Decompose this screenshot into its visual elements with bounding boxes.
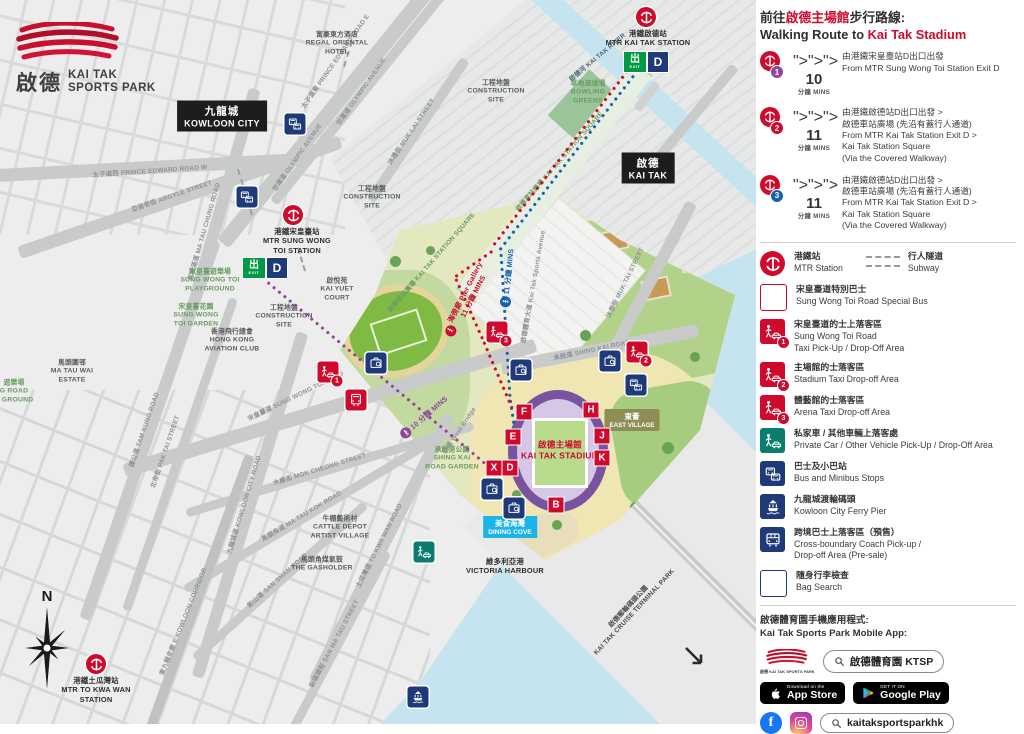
app-store-search-pill[interactable]: 啟德體育園 KTSP [823,650,944,673]
ktsp-logo: 啟德KAI TAKSPORTS PARK [16,22,156,97]
bag-icon [760,570,787,597]
area-number-badge: 3 [500,335,513,348]
east-village-box: 東薈EAST VILLAGE [604,409,659,431]
mtr-icon [283,205,303,225]
taxi-icon: 1 [760,319,785,344]
legend-item-taxi2: 2主場館的士落客區Stadium Taxi Drop-off Area [760,362,1016,387]
legend-text: 行人隧道Subway [908,251,943,274]
legend-item-bus: 宋皇臺道特別巴士Sung Wong Toi Road Special Bus [760,284,1016,311]
route-dots: ">">"> [792,177,836,195]
area-number-badge: 2 [640,355,653,368]
legend-item-bag: 隨身行李檢查Bag Search [760,570,1016,597]
stadium-gate-F: F [516,404,533,421]
bag-icon [504,498,525,519]
taxi-icon [414,542,435,563]
ktsp-logo-zh: 啟德 [16,67,62,97]
coach-icon [760,527,785,552]
legend-item-subway: 行人隧道Subway [866,251,943,274]
area-number-badge: 1 [331,375,344,388]
map-label: 宋皇臺花園SUNG WONGTOI GARDEN [173,303,218,328]
area-number-badge: 1 [777,336,790,349]
cruise-terminal-arrow-icon [682,644,706,673]
panel-title-zh: 前往啟德主場館步行路線: [760,10,1016,27]
legend-text: 宋皇臺道的士上落客區Sung Wong Toi RoadTaxi Pick-Up… [794,319,904,354]
taxi-icon [760,428,785,453]
stadium-gate-J: J [594,428,611,445]
district-label-box: 九龍城KOWLOON CITY [177,101,267,132]
map-label: 啟德主場館KAI TAK STADIUM [521,439,599,460]
route-dots: ">">"> [792,53,836,71]
bag-icon [600,351,621,372]
map-label: 馬頭角煤氣鼓THE GASHOLDER [291,557,353,574]
stadium-gate-E: E [505,429,522,446]
track-infield [369,308,427,356]
route-time: ">">">11分鐘 MINS [792,107,836,164]
bus-icon [346,390,367,411]
search-icon [831,718,842,729]
divider [760,605,1016,606]
legend-text: 體藝館的士落客區Arena Taxi Drop-off Area [794,395,890,418]
walking-route-3: 3">">">11分鐘 MINS由港鐵啟德站D出口出發 >啟德車站廣場 (先沿有… [760,175,1016,232]
dining-cove-box: 美食海灣DINING COVE [483,516,537,538]
route-number-badge: 2 [770,121,784,135]
map-label: 啟悅苑KAI YUETCOURT [320,277,353,302]
legend-item-taxi3: 3體藝館的士落客區Arena Taxi Drop-off Area [760,395,1016,420]
area-number-badge: 3 [777,412,790,425]
walker-icon [499,296,511,308]
taxi-icon: 3 [760,395,785,420]
map-canvas: 啟德KAI TAKSPORTS PARK N 太子道西 PRINCE EDWAR… [0,0,756,724]
map-label: 牛棚藝術村CATTLE DEPOTARTIST VILLAGE [311,515,370,540]
google-play-badge[interactable]: GET IT ONGoogle Play [853,682,949,704]
subway-dash-icon [866,251,900,274]
legend-text: 九龍城渡輪碼頭Kowloon City Ferry Pier [794,494,886,517]
mtr-icon [86,654,106,674]
map-label: 遊樂場G ROADN GROUND [0,379,33,404]
app-title-en: Kai Tak Sports Park Mobile App: [760,627,1016,640]
walking-route-1: 1">">">10分鐘 MINS由港鐵宋皇臺站D出口出發From MTR Sun… [760,51,1016,96]
map-label: 馬頭圍邨MA TAU WAIESTATE [51,359,93,384]
walking-route-2: 2">">">11分鐘 MINS由港鐵啟德站D出口出發 >啟德車站廣場 (先沿有… [760,107,1016,164]
legend-text: 宋皇臺道特別巴士Sung Wong Toi Road Special Bus [796,284,928,307]
taxi-icon: 2 [760,362,785,387]
area-number-badge: 2 [777,379,790,392]
taxi-icon: 3 [487,322,508,343]
legend-item-mtr: 港鐵站MTR Station行人隧道Subway [760,251,1016,276]
route-badge: 2 [760,107,786,164]
stadium-gate-X: X [486,460,503,477]
app-store-badge[interactable]: Download on theApp Store [760,682,845,704]
taxi-icon: 2 [627,342,648,363]
mtr-icon [636,7,656,27]
ktsp-logo-en: KAI TAKSPORTS PARK [68,67,156,95]
ktsp-logo-waves-icon [16,22,120,62]
route-number-badge: 1 [770,65,784,79]
busstop-icon [237,187,258,208]
route-dots: ">">"> [792,109,836,127]
ferry-icon [408,687,429,708]
map-label: 工程地盤CONSTRUCTIONSITE [467,79,524,104]
app-title-zh: 啟德體育園手機應用程式: [760,614,1016,627]
stadium-gate-K: K [594,450,611,467]
divider [760,242,1016,243]
bag-icon [366,353,387,374]
district-label-box: 啟德KAI TAK [622,153,675,184]
map-label: 港鐵宋皇臺站MTR SUNG WONGTOI STATION [263,227,331,255]
stadium-gate-H: H [583,402,600,419]
station-exit-d-badge: 出EXITD [623,51,669,73]
bag-icon [482,479,503,500]
route-time: ">">">11分鐘 MINS [792,175,836,232]
legend-text: 私家車 / 其他車輛上落客處Private Car / Other Vehicl… [794,428,993,451]
route-description: 由港鐵啟德站D出口出發 >啟德車站廣場 (先沿有蓋行人通道)From MTR K… [842,107,977,164]
mtr-icon [760,251,785,276]
map-label: 工程地盤CONSTRUCTIONSITE [343,185,400,210]
bag-icon [511,360,532,381]
compass-rose: N [24,588,70,696]
info-panel: 前往啟德主場館步行路線: Walking Route to Kai Tak St… [756,0,1024,724]
legend-item-coach: 跨境巴士上落客區（預售）Cross-boundary Coach Pick-up… [760,527,1016,562]
legend-item-taxi1: 1宋皇臺道的士上落客區Sung Wong Toi RoadTaxi Pick-U… [760,319,1016,354]
route-description: 由港鐵啟德站D出口出發 >啟德車站廣場 (先沿有蓋行人通道)From MTR K… [842,175,977,232]
legend-item-ferry: 九龍城渡輪碼頭Kowloon City Ferry Pier [760,494,1016,519]
social-search-pill[interactable]: kaitaksportsparkhk [820,713,954,733]
route-number-badge: 3 [770,189,784,203]
busstop-icon [626,375,647,396]
ktsp-mini-logo: 啟德 KAI TAK SPORTS PARK [760,649,815,674]
stadium-gate-D: D [502,460,519,477]
map-label: 港鐵土瓜灣站MTR TO KWA WANSTATION [61,676,130,704]
taxi-icon: 1 [318,362,339,383]
busstop-icon [760,461,785,486]
station-exit-d-badge: 出EXITD [242,257,288,279]
compass-north-label: N [24,588,70,605]
map-label: 香港飛行總會HONG KONGAVIATION CLUB [205,328,260,353]
route-description: 由港鐵宋皇臺站D出口出發From MTR Sung Wong Toi Stati… [842,51,1000,96]
legend-text: 隨身行李檢查Bag Search [796,570,849,593]
apple-icon [768,686,782,700]
legend-item-taxi: 私家車 / 其他車輛上落客處Private Car / Other Vehicl… [760,428,1016,453]
bus-icon [760,284,787,311]
google-play-icon [861,686,875,700]
map-label: 維多利亞港VICTORIA HARBOUR [466,557,544,576]
route-badge: 1 [760,51,786,96]
facebook-icon[interactable]: f [760,712,782,734]
mobile-app-section: 啟德體育園手機應用程式: Kai Tak Sports Park Mobile … [760,614,1016,734]
legend-text: 跨境巴士上落客區（預售）Cross-boundary Coach Pick-up… [794,527,921,562]
compass-star-icon [24,605,70,691]
busstop-icon [285,114,306,135]
map-label: 富豪東方酒店REGAL ORIENTALHOTEL [306,31,369,56]
kai-tak-sports-park-access-map: 啟德KAI TAKSPORTS PARK N 太子道西 PRINCE EDWAR… [0,0,1024,724]
legend-item-busstop: 巴士及小巴站Bus and Minibus Stops [760,461,1016,486]
panel-title-en: Walking Route to Kai Tak Stadium [760,27,1016,44]
map-legend: 港鐵站MTR Station行人隧道Subway宋皇臺道特別巴士Sung Won… [760,251,1016,597]
legend-text: 港鐵站MTR Station [794,251,843,274]
route-badge: 3 [760,175,786,232]
instagram-icon[interactable] [790,712,812,734]
route-time: ">">">10分鐘 MINS [792,51,836,96]
stadium-gate-B: B [548,497,565,514]
map-label: 宋皇臺遊樂場SUNG WONG TOIPLAYGROUND [180,268,239,293]
search-icon [834,656,845,667]
legend-text: 巴士及小巴站Bus and Minibus Stops [794,461,884,484]
map-label: 工程地盤CONSTRUCTIONSITE [255,304,312,329]
walking-routes-list: 1">">">10分鐘 MINS由港鐵宋皇臺站D出口出發From MTR Sun… [760,51,1016,231]
ferry-icon [760,494,785,519]
legend-text: 主場館的士落客區Stadium Taxi Drop-off Area [794,362,899,385]
map-label: 港鐵啟德站MTR KAI TAK STATION [606,29,691,48]
